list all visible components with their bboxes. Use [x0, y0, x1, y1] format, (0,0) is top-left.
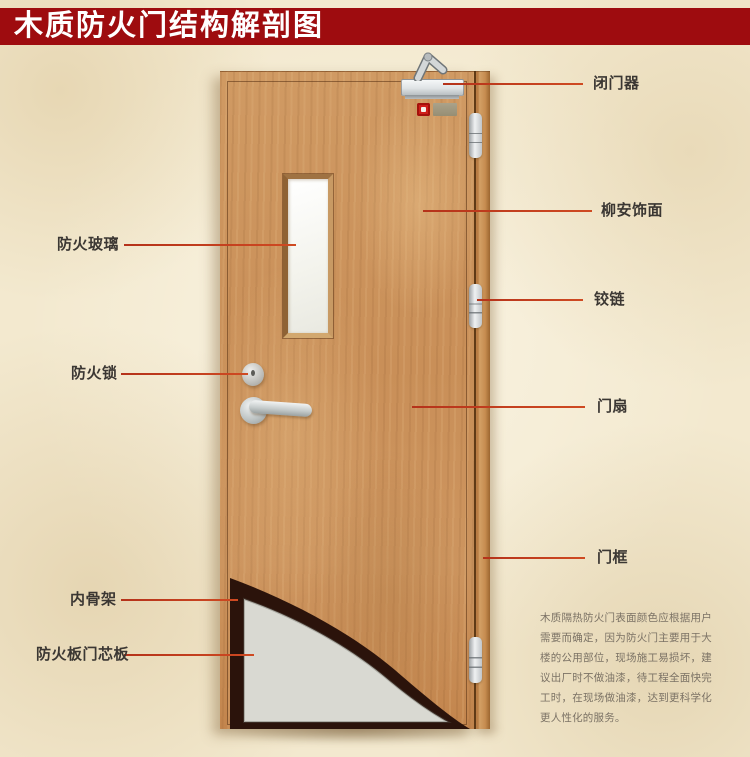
leader-line-fire-board-core — [124, 654, 254, 656]
page-title: 木质防火门结构解剖图 — [0, 8, 750, 45]
label-door-closer: 闭门器 — [593, 76, 640, 92]
hinge-middle — [469, 284, 482, 328]
label-door-frame: 门框 — [597, 550, 628, 566]
label-fire-glass: 防火玻璃 — [57, 237, 119, 253]
leader-line-door-leaf — [412, 406, 585, 408]
label-door-leaf: 门扇 — [597, 399, 628, 415]
label-lauan-veneer: 柳安饰面 — [601, 203, 663, 219]
label-fire-lock: 防火锁 — [71, 366, 118, 382]
leader-line-hinge — [477, 299, 583, 301]
door-closer-arm — [410, 51, 452, 81]
hinge-top — [469, 113, 482, 158]
label-inner-skeleton: 内骨架 — [70, 592, 117, 608]
leader-line-lauan-veneer — [423, 210, 592, 212]
door-closer-body — [401, 79, 464, 96]
title-banner: 木质防火门结构解剖图 — [0, 8, 750, 45]
door-frame-jamb — [474, 71, 490, 729]
leader-line-inner-skeleton — [121, 599, 238, 601]
label-fire-board-core: 防火板门芯板 — [36, 647, 129, 663]
door-leaf-illustration — [220, 71, 474, 729]
hinge-bottom — [469, 637, 482, 683]
label-hinge: 铰链 — [594, 292, 625, 308]
fire-glass-window — [283, 174, 333, 338]
door-closer-mount — [405, 95, 459, 99]
leader-line-fire-lock — [121, 373, 248, 375]
bottom-cutaway — [220, 569, 474, 729]
red-indicator-badge — [417, 103, 430, 116]
page: 木质防火门结构解剖图 防火玻璃 防火锁 内骨架 防火板门芯 — [0, 0, 750, 757]
metal-plate — [433, 103, 457, 116]
leader-line-door-frame — [483, 557, 585, 559]
leader-line-fire-glass — [124, 244, 296, 246]
leader-line-door-closer — [443, 83, 583, 85]
description-text: 木质隔热防火门表面颜色应根据用户需要而确定，因为防火门主要用于大楼的公用部位，现… — [540, 608, 712, 728]
